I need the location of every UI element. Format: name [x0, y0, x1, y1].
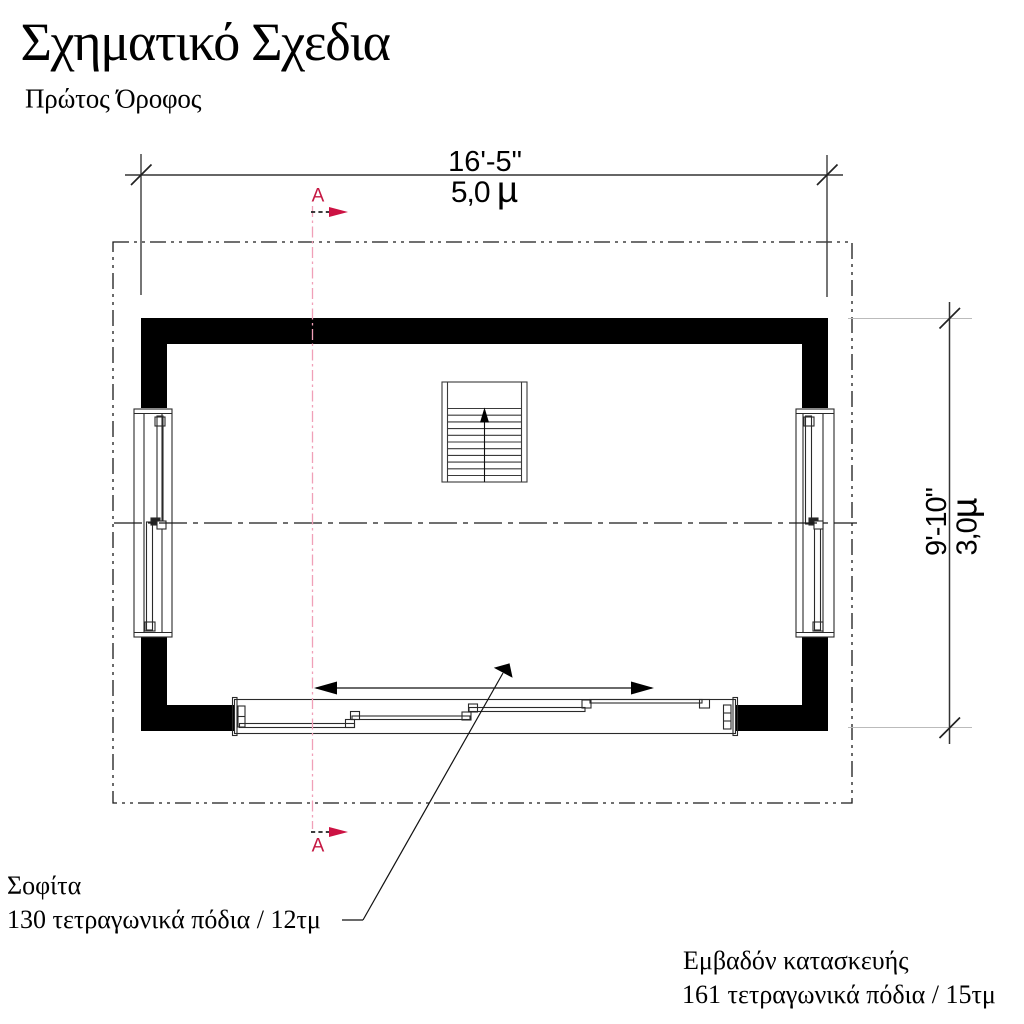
- svg-text:9'-10": 9'-10": [921, 487, 953, 556]
- svg-text:161 τετραγωνικά πόδια / 15τμ: 161 τετραγωνικά πόδια / 15τμ: [682, 980, 996, 1009]
- svg-text:5,0 µ: 5,0 µ: [451, 169, 518, 210]
- svg-text:Πρώτος Όροφος: Πρώτος Όροφος: [25, 84, 202, 114]
- svg-text:Σοφίτα: Σοφίτα: [7, 871, 82, 900]
- svg-text:Εμβαδόν κατασκευής: Εμβαδόν κατασκευής: [683, 946, 909, 975]
- svg-text:130 τετραγωνικά πόδια / 12τμ: 130 τετραγωνικά πόδια / 12τμ: [7, 905, 321, 934]
- svg-text:A: A: [312, 836, 325, 857]
- svg-text:A: A: [312, 186, 325, 207]
- svg-text:Σχηματικό Σχεδια: Σχηματικό Σχεδια: [21, 12, 391, 72]
